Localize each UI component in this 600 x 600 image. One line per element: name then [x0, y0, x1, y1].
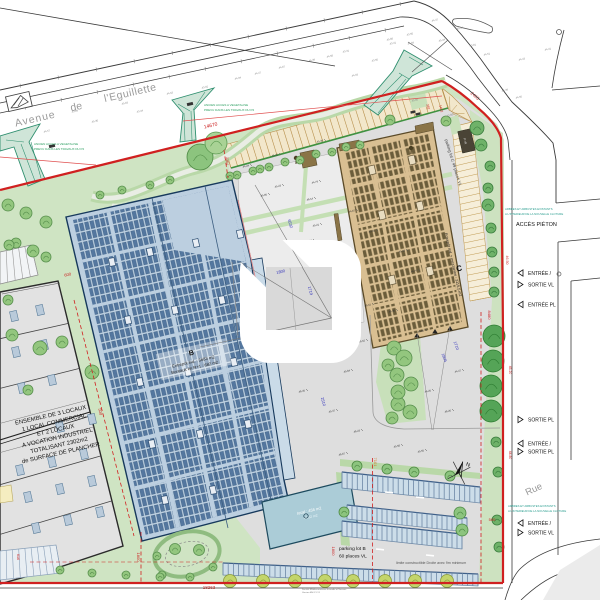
svg-text:SORTIE VL: SORTIE VL — [528, 283, 554, 289]
svg-text:500: 500 — [489, 517, 496, 522]
svg-text:ACCÈS PIÉTON: ACCÈS PIÉTON — [516, 221, 557, 228]
svg-text:1364: 1364 — [225, 157, 229, 165]
svg-text:1800: 1800 — [331, 547, 336, 557]
svg-text:SORTIE PL: SORTIE PL — [528, 418, 554, 424]
svg-text:parking lot B: parking lot B — [339, 546, 366, 552]
svg-text:1800: 1800 — [136, 553, 141, 563]
svg-text:18263: 18263 — [203, 585, 216, 590]
svg-text:SORTIE VL: SORTIE VL — [528, 531, 554, 537]
svg-text:Version MH C1 V1: Version MH C1 V1 — [302, 591, 321, 594]
svg-text:7101: 7101 — [373, 458, 378, 468]
svg-text:limite constructible Droite av: limite constructible Droite avec 9m mini… — [396, 561, 466, 565]
svg-text:ARBRES ET ARBUSTES EXISTANTS: ARBRES ET ARBUSTES EXISTANTS — [505, 207, 553, 211]
svg-text:8480: 8480 — [487, 311, 492, 321]
svg-text:ENTRÉE PL: ENTRÉE PL — [528, 302, 556, 309]
svg-text:A L'INTERIEUR DE LA NOUVELLE C: A L'INTERIEUR DE LA NOUVELLE CLOTURE — [505, 212, 563, 216]
svg-text:A L'INTERIEUR DE LA NOUVELLE C: A L'INTERIEUR DE LA NOUVELLE CLOTURE — [508, 509, 566, 513]
svg-text:616: 616 — [16, 554, 20, 560]
svg-text:PREVU DANS LES TRAVAUX DU P2: PREVU DANS LES TRAVAUX DU P2 — [204, 108, 255, 112]
svg-text:SORTIE PL: SORTIE PL — [528, 450, 554, 456]
svg-text:ENTRÉE /: ENTRÉE / — [528, 270, 552, 277]
svg-text:60 places VL: 60 places VL — [339, 554, 367, 560]
svg-text:45.20: 45.20 — [508, 366, 512, 375]
svg-text:ANCIEN ACCES A VEGETALISE: ANCIEN ACCES A VEGETALISE — [204, 103, 248, 107]
svg-text:Société Méditerranéenne Incend: Société Méditerranéenne Incendie et Seco… — [302, 588, 347, 591]
svg-text:44.80: 44.80 — [508, 451, 512, 460]
svg-text:ARBRES ET ARBUSTES EXISTANTS: ARBRES ET ARBUSTES EXISTANTS — [508, 504, 556, 508]
svg-text:ENTRÉE /: ENTRÉE / — [528, 520, 552, 527]
svg-text:PREVU DANS LES TRAVAUX DU P2: PREVU DANS LES TRAVAUX DU P2 — [34, 147, 85, 151]
svg-text:ENTRÉE /: ENTRÉE / — [528, 441, 552, 448]
svg-text:ANCIEN ACCES A VEGETALISE: ANCIEN ACCES A VEGETALISE — [34, 142, 78, 146]
svg-text:46.50: 46.50 — [505, 256, 509, 265]
